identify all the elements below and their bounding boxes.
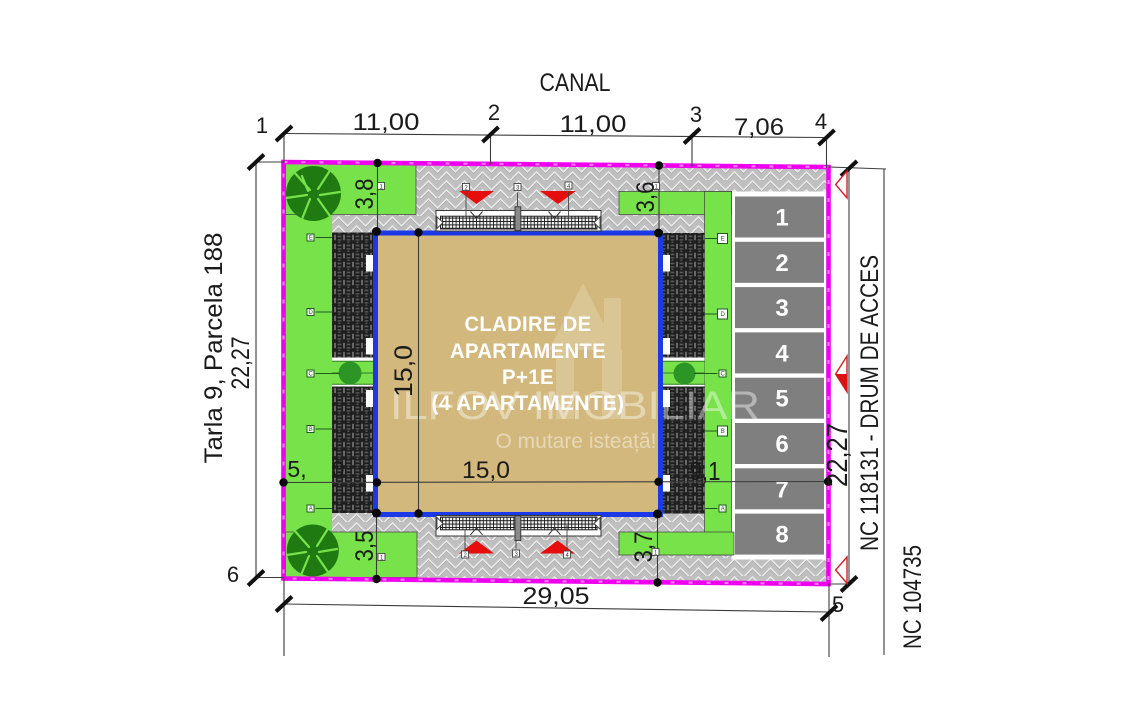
- svg-text:22,27: 22,27: [227, 337, 255, 390]
- svg-text:11,00: 11,00: [353, 109, 420, 136]
- svg-text:5: 5: [775, 386, 788, 413]
- svg-text:A: A: [721, 507, 725, 513]
- svg-text:APARTAMENTE: APARTAMENTE: [450, 340, 606, 363]
- svg-text:3,6: 3,6: [632, 182, 660, 213]
- svg-text:NC 118131 - DRUM DE ACCES: NC 118131 - DRUM DE ACCES: [856, 255, 884, 551]
- svg-text:7,06: 7,06: [734, 114, 784, 141]
- svg-text:C: C: [309, 372, 314, 378]
- svg-text:3: 3: [775, 295, 788, 322]
- svg-text:CANAL: CANAL: [540, 69, 611, 97]
- svg-text:6: 6: [227, 562, 239, 587]
- svg-text:CLADIRE DE: CLADIRE DE: [465, 313, 592, 336]
- svg-text:15,0: 15,0: [462, 457, 510, 484]
- svg-text:3,5: 3,5: [351, 531, 379, 562]
- svg-text:4: 4: [775, 340, 789, 367]
- svg-text:22,27: 22,27: [822, 423, 854, 487]
- svg-text:11,00: 11,00: [560, 111, 627, 138]
- svg-text:C: C: [721, 372, 726, 378]
- svg-text:2: 2: [775, 250, 788, 277]
- svg-text:6: 6: [775, 431, 788, 458]
- svg-text:B: B: [309, 427, 313, 433]
- svg-text:A: A: [309, 507, 313, 513]
- svg-text:3,7: 3,7: [630, 532, 658, 563]
- svg-text:O mutare isteață!: O mutare isteață!: [496, 430, 657, 453]
- svg-text:29,05: 29,05: [523, 583, 590, 610]
- svg-text:15,0: 15,0: [390, 345, 418, 397]
- svg-text:5,: 5,: [287, 456, 306, 482]
- svg-text:(4 APARTAMENTE): (4 APARTAMENTE): [432, 392, 625, 415]
- svg-text:E: E: [721, 237, 725, 243]
- svg-text:2: 2: [488, 100, 500, 125]
- svg-text:9,1: 9,1: [690, 456, 721, 486]
- svg-text:E: E: [309, 236, 313, 242]
- svg-text:P+1E: P+1E: [502, 366, 554, 389]
- svg-text:D: D: [309, 310, 314, 316]
- svg-text:3,8: 3,8: [351, 179, 379, 210]
- svg-text:B: B: [721, 429, 725, 435]
- svg-text:7: 7: [775, 476, 788, 503]
- svg-text:1: 1: [775, 205, 788, 232]
- svg-text:1: 1: [256, 113, 268, 138]
- svg-text:3: 3: [690, 102, 702, 127]
- svg-text:5: 5: [832, 592, 844, 617]
- svg-text:Tarla 9, Parcela 188: Tarla 9, Parcela 188: [200, 233, 228, 464]
- svg-text:8: 8: [775, 522, 788, 549]
- svg-text:4: 4: [815, 109, 827, 134]
- svg-text:NC 104735: NC 104735: [899, 545, 927, 649]
- svg-text:D: D: [721, 312, 726, 318]
- svg-text:0: 0: [332, 456, 345, 482]
